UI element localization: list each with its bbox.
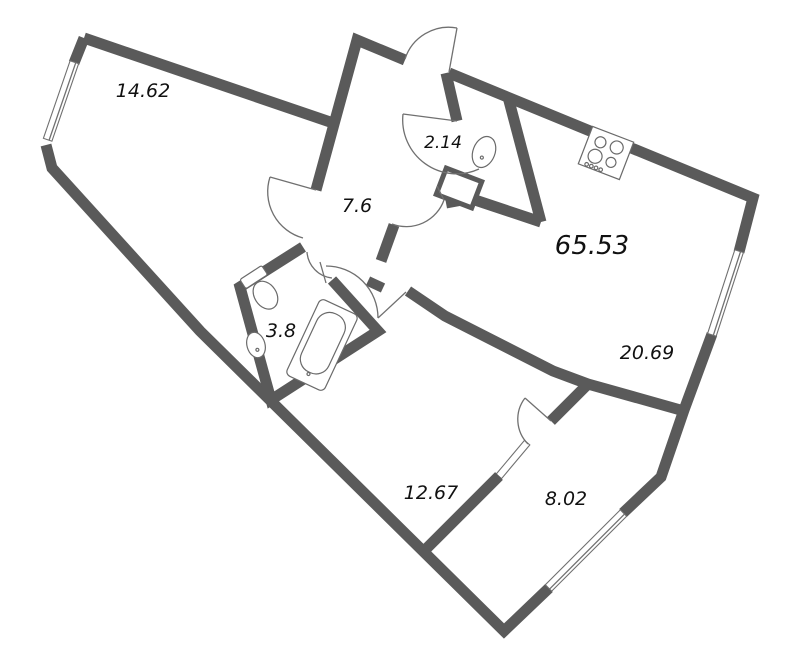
wall-corridor-stub: [368, 281, 383, 288]
bedroom-area-label: 14.62: [116, 80, 170, 102]
floor-plan-drawing: 14.62 2.14 7.6 65.53 20.69 3.8 12.67 8.0…: [0, 0, 800, 668]
corridor-area-label: 12.67: [404, 482, 458, 504]
balcony-area-label: 8.02: [545, 488, 587, 510]
window-corridor-balcony-partition: [496, 440, 530, 478]
wall-corridor-balcony-top: [551, 384, 588, 421]
wc-sink-icon: [468, 133, 500, 171]
bedroom-door: [268, 177, 316, 238]
window-bedroom: [43, 61, 78, 141]
entry-door: [405, 27, 457, 72]
hallway-area-label: 7.6: [342, 195, 372, 217]
wc-area-label: 2.14: [424, 133, 462, 153]
bathroom-door: [307, 252, 332, 283]
wall-hall-living: [381, 225, 394, 261]
window-living-room: [708, 250, 744, 336]
wall-vestibule: [316, 40, 405, 190]
wall-left-top: [74, 38, 84, 63]
wall-wc-right: [508, 97, 541, 222]
balcony-door: [518, 398, 551, 444]
window-balcony: [545, 510, 626, 591]
bathroom-area-label: 3.8: [266, 320, 296, 342]
outer-walls: [46, 38, 753, 631]
living-room-area-label: 20.69: [620, 342, 674, 364]
windows: [43, 61, 743, 591]
floor-plan-canvas: 14.62 2.14 7.6 65.53 20.69 3.8 12.67 8.0…: [0, 0, 800, 668]
total-area-label: 65.53: [555, 231, 629, 261]
